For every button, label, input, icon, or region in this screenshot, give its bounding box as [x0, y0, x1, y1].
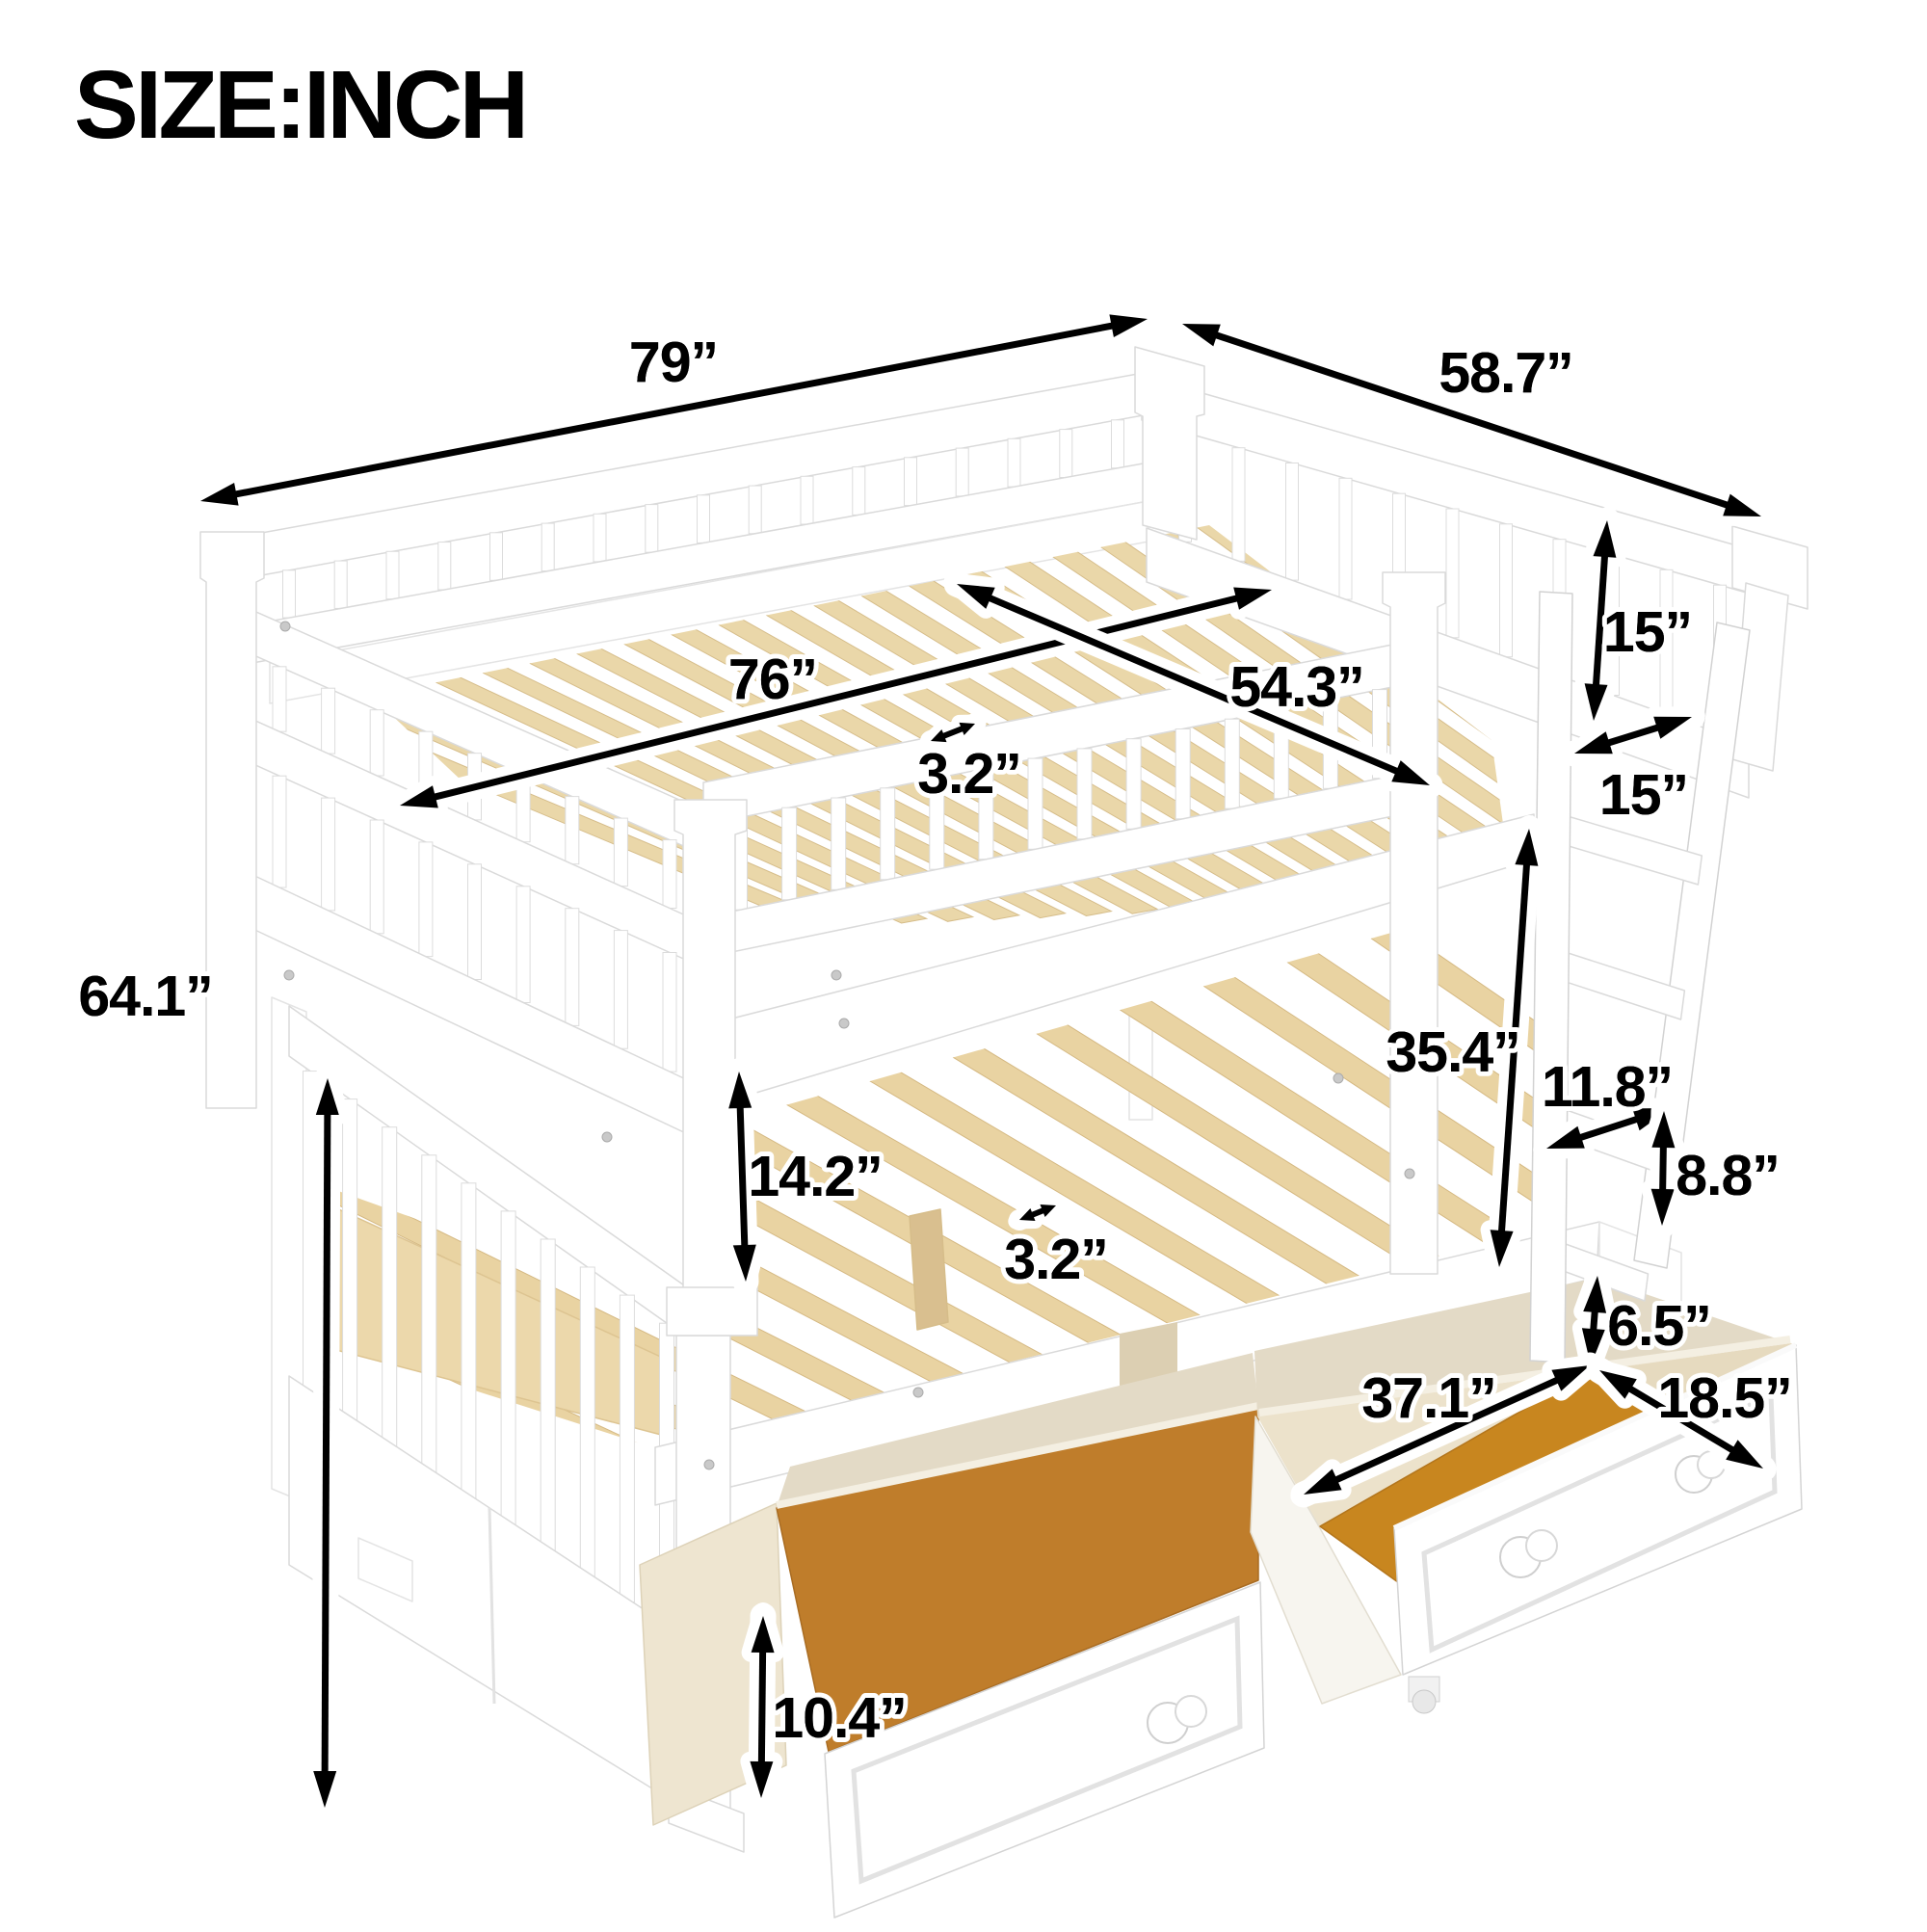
svg-text:79”: 79” [629, 331, 718, 394]
svg-text:64.1”: 64.1” [78, 965, 212, 1028]
svg-text:3.2”: 3.2” [1004, 1228, 1108, 1291]
svg-text:15”: 15” [1603, 600, 1692, 664]
svg-text:15”: 15” [1599, 763, 1688, 827]
svg-text:76”: 76” [728, 648, 817, 711]
svg-text:18.5”: 18.5” [1657, 1366, 1791, 1430]
svg-text:3.2”: 3.2” [917, 742, 1021, 806]
svg-text:SIZE:INCH: SIZE:INCH [74, 51, 526, 159]
svg-text:8.8”: 8.8” [1676, 1144, 1780, 1207]
svg-text:11.8”: 11.8” [1542, 1055, 1673, 1119]
svg-text:54.3”: 54.3” [1229, 655, 1363, 719]
svg-text:6.5”: 6.5” [1607, 1294, 1711, 1358]
svg-text:37.1”: 37.1” [1361, 1366, 1495, 1430]
svg-text:58.7”: 58.7” [1439, 341, 1572, 405]
svg-text:14.2”: 14.2” [748, 1145, 882, 1208]
svg-text:10.4”: 10.4” [772, 1686, 906, 1750]
svg-text:35.4”: 35.4” [1386, 1020, 1519, 1084]
